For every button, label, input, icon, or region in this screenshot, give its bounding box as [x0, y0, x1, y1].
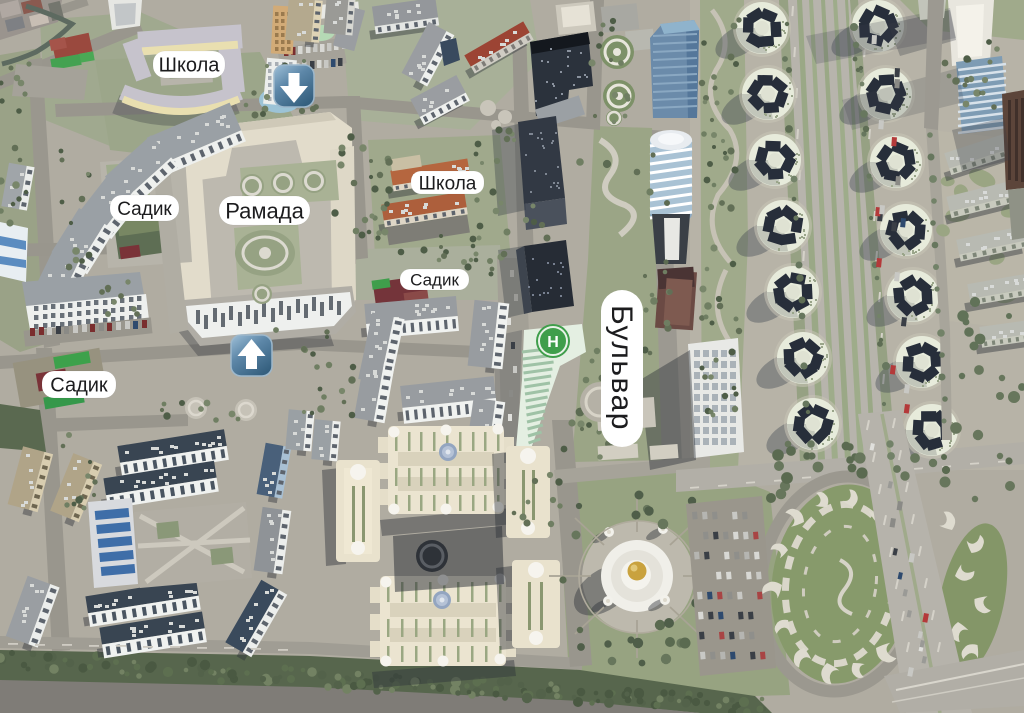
- svg-text:Садик: Садик: [117, 199, 172, 220]
- svg-text:Школа: Школа: [419, 173, 477, 194]
- svg-text:Садик: Садик: [410, 271, 459, 290]
- svg-text:Бульвар: Бульвар: [605, 305, 638, 431]
- svg-text:Школа: Школа: [159, 55, 221, 77]
- svg-text:Рамада: Рамада: [225, 198, 304, 223]
- svg-text:Садик: Садик: [50, 375, 108, 397]
- svg-text:H: H: [547, 334, 559, 351]
